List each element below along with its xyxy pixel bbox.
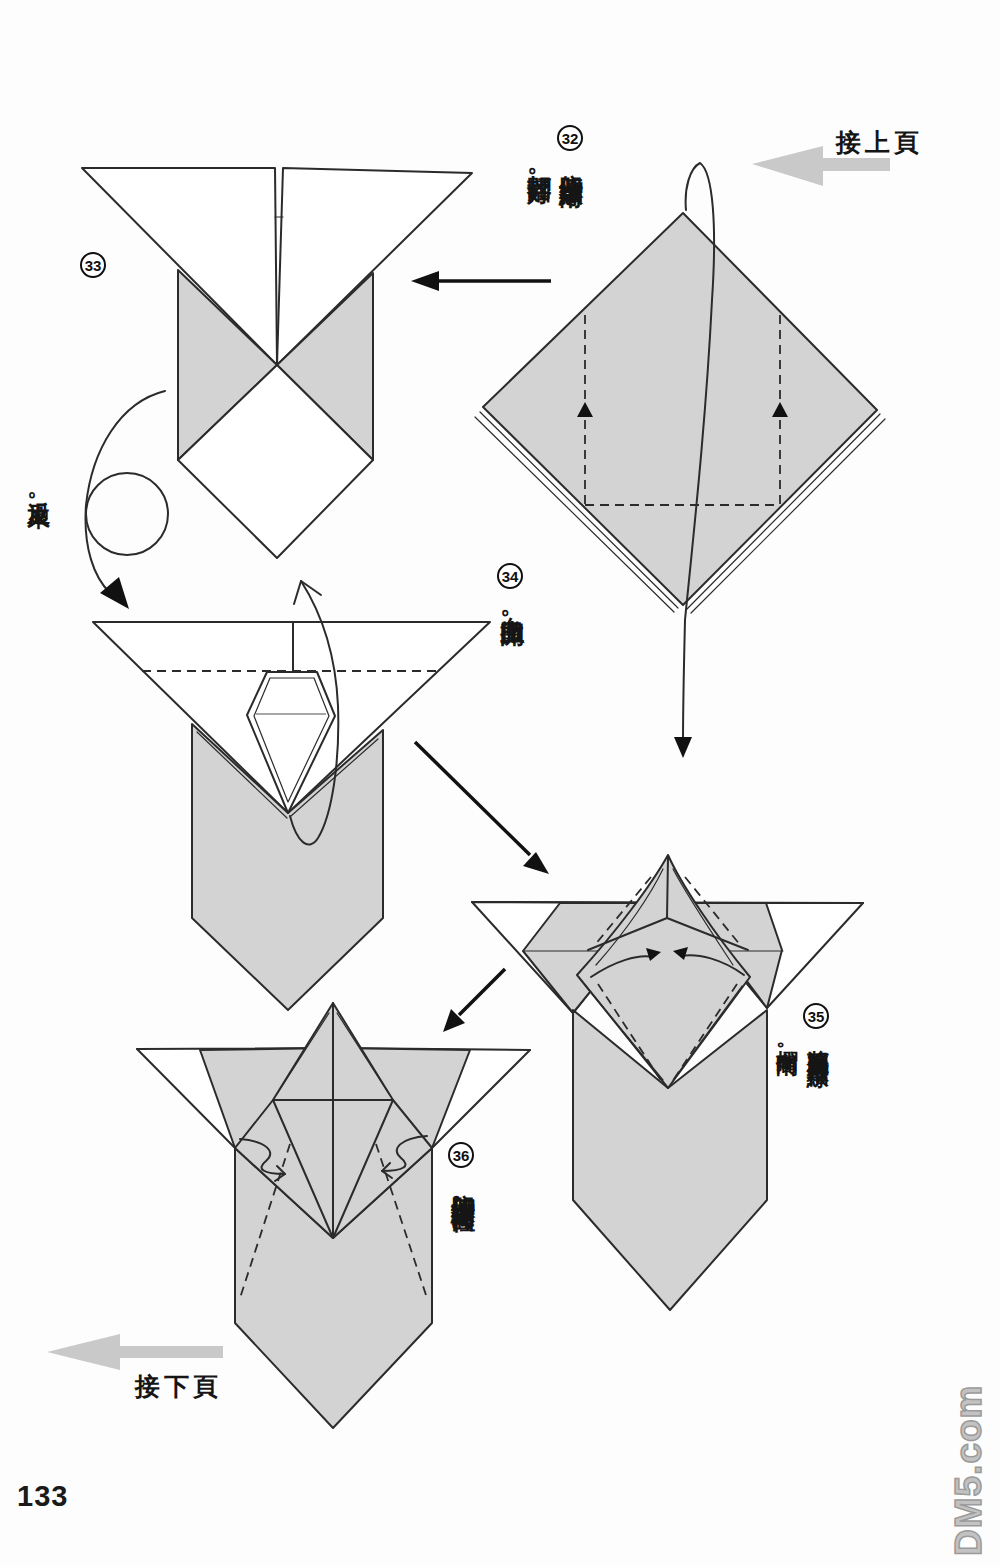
step-34-instruction-line-1: 向上掀開。 [500, 598, 525, 632]
diagram-canvas [0, 0, 1000, 1567]
step-32-instruction-line-2: 打開摺好。 [527, 156, 552, 190]
step-35-badge: 35 [803, 1003, 829, 1029]
step-34-badge: 34 [497, 563, 523, 589]
step-32-figure [475, 213, 885, 613]
next-page-label: 接下頁 [135, 1370, 222, 1403]
step-35-instruction-line-2: 摺向中間。 [776, 1032, 799, 1064]
origami-instruction-page: 接上頁 32 依凹凸摺線向下 打開摺好。 33 反過來。 34 向上掀開。 35… [0, 0, 1000, 1567]
step-33-figure [82, 168, 472, 558]
step-arrow-32-to-33-icon [411, 271, 551, 291]
step-arrow-35-to-36-icon [443, 969, 505, 1032]
step-arrow-34-to-35-icon [415, 742, 549, 874]
step-34-figure [93, 581, 490, 1010]
watermark: DM5.com [948, 1385, 990, 1556]
flip-over-icon [86, 391, 168, 609]
step-35-instruction-line-1: 將裡面兩片依凹摺線 [807, 1032, 830, 1050]
step-33-badge: 33 [80, 252, 106, 278]
step-36-badge: 36 [448, 1142, 474, 1168]
step-35-figure [472, 855, 863, 1310]
next-page-arrow-icon [47, 1334, 223, 1370]
prev-page-label: 接上頁 [836, 126, 923, 159]
step-36-instruction-line-1: 依凹摺線摺向裡面。 [451, 1176, 476, 1218]
step-32-instruction-line-1: 依凹凸摺線向下 [559, 156, 584, 170]
step-32-badge: 32 [557, 125, 583, 151]
flip-note: 反過來。 [27, 483, 51, 514]
page-number: 133 [17, 1480, 68, 1513]
